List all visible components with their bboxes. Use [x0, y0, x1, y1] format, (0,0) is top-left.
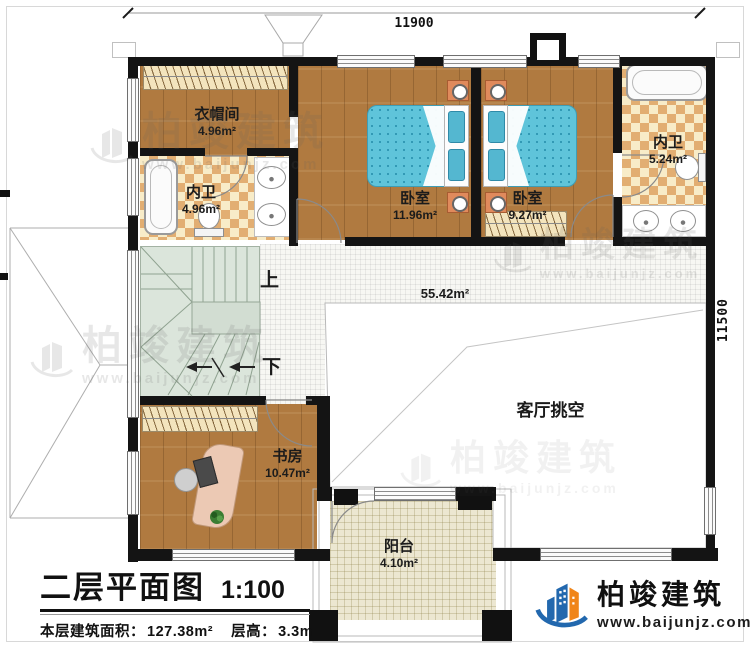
brand-text: 柏竣建筑 www.baijunjz.com: [597, 581, 750, 631]
eave-notch-left: [112, 42, 136, 58]
window-left-1: [127, 78, 139, 142]
floor-plan-sheet: 11900 11500 衣帽间 4.96m² 内卫 4.96m² 卧室 11.9…: [0, 0, 750, 648]
label-void: 客厅挑空: [468, 396, 633, 421]
window-left-4: [127, 451, 139, 515]
brand-logo-icon: [534, 577, 590, 635]
bed-1: [367, 103, 471, 189]
nightstand-2a: [485, 80, 507, 101]
study-shelf: [142, 406, 258, 432]
wall-hall-c: [613, 237, 715, 246]
wall-top: [128, 57, 715, 66]
window-left-2: [127, 158, 139, 216]
staircase: [140, 246, 260, 397]
balcony-pillar-br: [482, 610, 512, 641]
balcony-pillar-tl: [334, 489, 358, 505]
study-plant: [210, 510, 224, 524]
label-stairs-down: 下: [262, 352, 281, 379]
label-stairs-up: 上: [260, 265, 279, 292]
window-bottom-right: [540, 548, 672, 561]
window-top-2: [443, 55, 527, 68]
floor-height-label: 层高：: [231, 624, 276, 640]
title-row: 二层平面图 1:100: [40, 572, 315, 603]
area-value: 127.38m²: [147, 624, 213, 640]
brand-name: 柏竣建筑: [597, 581, 750, 609]
wall-balcony-a: [317, 487, 332, 501]
chimney-outline: [265, 15, 322, 56]
dimension-top: 11900: [374, 16, 454, 31]
dimension-right: 11500: [716, 298, 731, 342]
cloakroom-wardrobe: [143, 64, 288, 90]
bed-2-pillow-a: [488, 111, 505, 143]
eave-notch-right: [716, 42, 740, 58]
area-label: 本层建筑面积：: [40, 624, 145, 640]
bathtub-2: [626, 64, 708, 101]
sink-4: [670, 210, 696, 232]
watermark-logo-icon: [398, 446, 442, 490]
study-chair: [174, 468, 198, 492]
wall-cloak-bed1-upper: [289, 57, 298, 117]
window-top-3: [578, 55, 620, 68]
plan-subtitle: 本层建筑面积：127.38m²层高：3.3m: [40, 620, 315, 641]
bed-2: [483, 103, 579, 189]
bed-1-pillow-a: [448, 111, 465, 143]
toilet-1-tank: [194, 228, 224, 237]
window-left-3: [127, 250, 139, 418]
sink-3: [633, 210, 659, 232]
plan-title: 二层平面图: [40, 572, 205, 603]
balcony-pillar-tr: [458, 496, 492, 510]
title-underline: [40, 609, 310, 612]
label-bathroom2: 内卫 5.24m²: [610, 134, 726, 166]
wall-study-top: [140, 396, 266, 405]
label-bathroom1: 内卫 4.96m²: [145, 184, 257, 216]
edge-tick-1: [0, 190, 10, 197]
sink-2: [257, 203, 286, 226]
garage-roof-lines: [10, 228, 128, 518]
floor-height-value: 3.3m: [278, 624, 313, 640]
wall-cloak-bed1-lower: [289, 155, 298, 246]
watermark-logo-icon: [28, 334, 74, 380]
bed-2-pillow-b: [488, 149, 505, 181]
wall-hall-b: [345, 237, 565, 246]
brand-logo: 柏竣建筑 www.baijunjz.com: [534, 577, 750, 635]
wall-cloak-bath1-b: [247, 148, 298, 156]
label-cloakroom: 衣帽间 4.96m²: [146, 106, 288, 138]
label-hall-area: 55.42m²: [380, 286, 510, 301]
wall-hall-a: [289, 237, 298, 246]
window-study-bottom: [172, 549, 295, 561]
sink-1: [257, 166, 286, 189]
plan-scale: 1:100: [221, 577, 285, 603]
bed-1-pillow-b: [448, 149, 465, 181]
label-bedroom2: 卧室 9.27m²: [455, 190, 600, 222]
window-balcony: [374, 487, 456, 501]
window-right-1: [704, 487, 716, 535]
title-block: 二层平面图 1:100 本层建筑面积：127.38m²层高：3.3m: [40, 572, 315, 641]
window-top-1: [337, 55, 415, 68]
edge-tick-2: [0, 273, 8, 280]
brand-url: www.baijunjz.com: [597, 614, 750, 631]
label-balcony: 阳台 4.10m²: [325, 538, 473, 570]
flue-box: [530, 33, 566, 60]
wall-right: [706, 57, 715, 487]
wall-cloak-bath1-a: [140, 148, 205, 156]
title-underline-thin: [40, 614, 310, 615]
nightstand-1a: [447, 80, 469, 101]
label-study: 书房 10.47m²: [215, 448, 360, 480]
